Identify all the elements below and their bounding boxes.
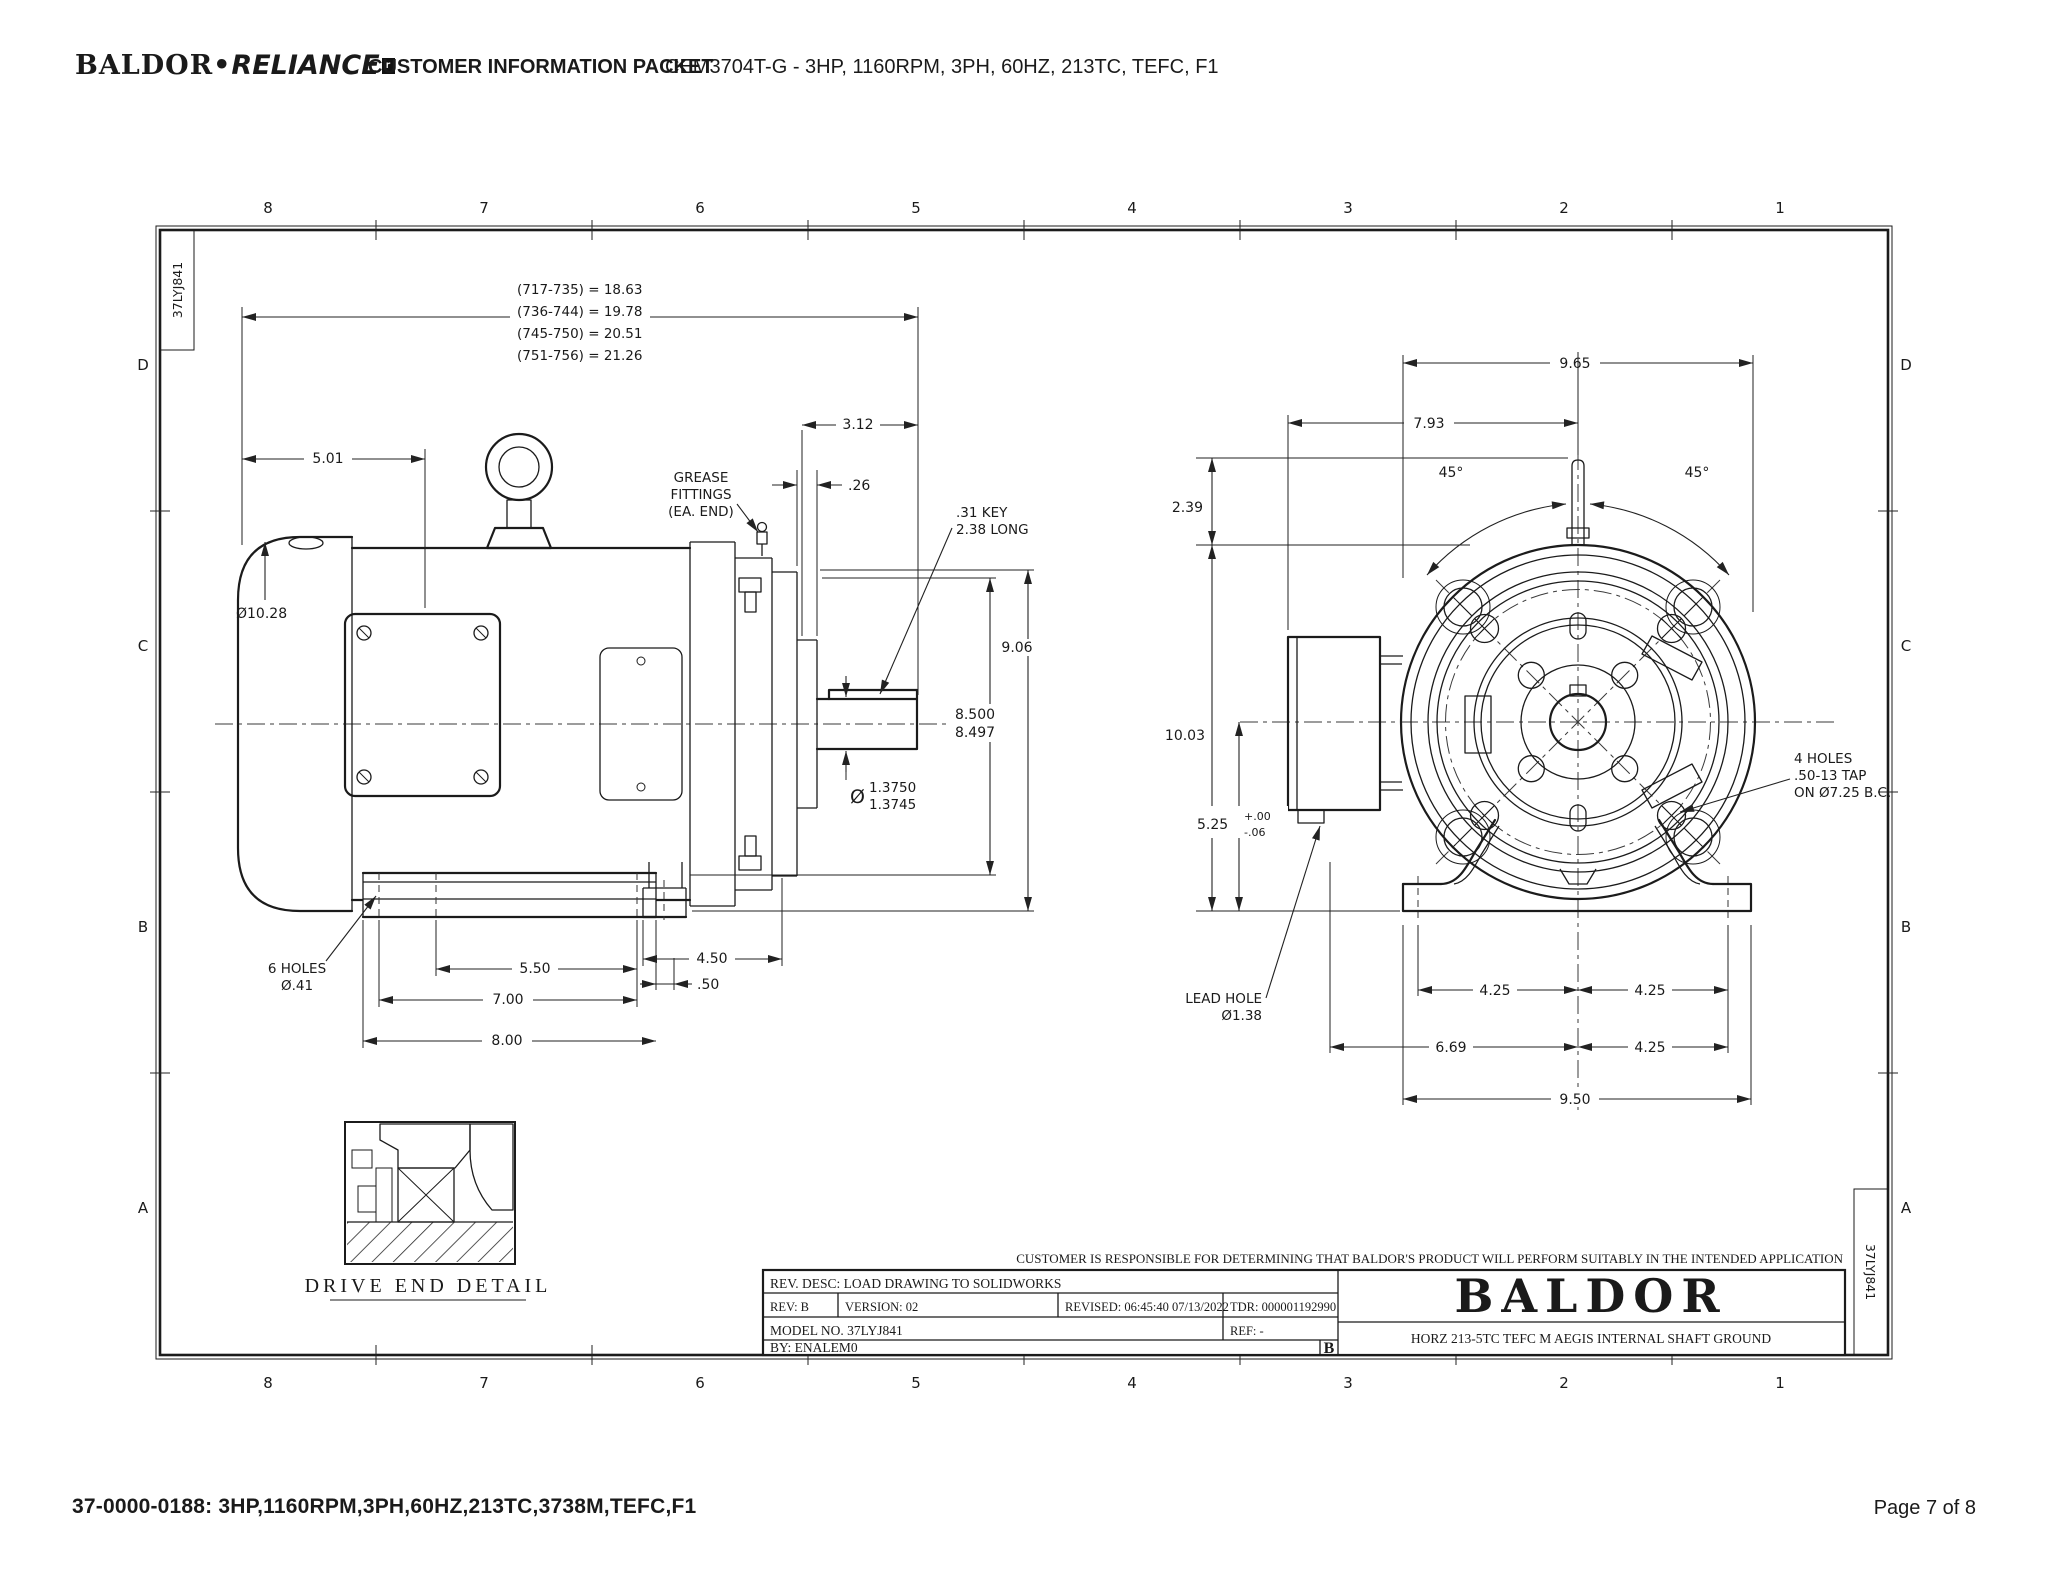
grid-col-bot-1: 1	[1775, 1374, 1785, 1392]
motor-shaft	[817, 690, 917, 749]
dim-3-12: 3.12	[842, 417, 873, 433]
tb-by: BY: ENALEM0	[770, 1340, 858, 1355]
motor-spec-header: CEM3704T-G - 3HP, 1160RPM, 3PH, 60HZ, 21…	[665, 56, 1219, 79]
angle-45-left: 45°	[1439, 465, 1464, 481]
dim-5-25: 5.25	[1197, 817, 1228, 833]
dim-10-03: 10.03	[1165, 728, 1205, 744]
detail-label: DRIVE END DETAIL	[305, 1275, 552, 1297]
tb-version: VERSION: 02	[845, 1300, 918, 1314]
side-dimensions: (717-735) = 18.63 (736-744) = 19.78 (745…	[236, 274, 1040, 1049]
tb-rev-desc: REV. DESC: LOAD DRAWING TO SOLIDWORKS	[770, 1276, 1061, 1291]
stamp-top-left: 37LYJ841	[170, 262, 185, 318]
grid-col-top-7: 7	[479, 199, 489, 217]
title-block: CUSTOMER IS RESPONSIBLE FOR DETERMINING …	[763, 1251, 1845, 1357]
tb-rev: REV: B	[770, 1300, 809, 1314]
length-table-row2: (736-744) = 19.78	[517, 304, 642, 320]
grid-col-bot-7: 7	[479, 1374, 489, 1392]
grid-col-top-3: 3	[1343, 199, 1353, 217]
engineering-drawing: 8 7 6 5 4 3 2 1 8 7 6 5 4 3 2 1 D C B A …	[0, 0, 2048, 1582]
dim-8-00: 8.00	[491, 1033, 522, 1049]
end-outline	[1288, 460, 1755, 918]
dim-0-50: .50	[697, 977, 719, 993]
grease-fitting	[757, 523, 767, 557]
page-number: Page 7 of 8	[1874, 1497, 1976, 1520]
grid-row-right-A: A	[1901, 1199, 1912, 1217]
dim-0-26: .26	[848, 478, 870, 494]
footer-part-number: 37-0000-0188: 3HP,1160RPM,3PH,60HZ,213TC…	[72, 1495, 696, 1519]
dim-4-25-b: 4.25	[1634, 983, 1665, 999]
stamp-bottom-right: 37LYJ841	[1863, 1244, 1878, 1300]
grease-label-1: GREASE	[674, 470, 729, 486]
length-table-row4: (751-756) = 21.26	[517, 348, 642, 364]
grid-col-bot-3: 3	[1343, 1374, 1353, 1392]
brand-logo: BALDOR•RELIANCEr	[75, 50, 395, 81]
end-dimensions: 9.65 7.93 45° 45° 2.39 10.03	[1165, 352, 1891, 1108]
grid-row-left-C: C	[138, 637, 148, 655]
angle-45-right: 45°	[1685, 465, 1710, 481]
side-outline	[238, 434, 917, 920]
grid-row-right-C: C	[1901, 637, 1911, 655]
conduit-box-end	[1288, 637, 1403, 823]
tb-ref: REF: -	[1230, 1324, 1264, 1338]
dim-9-06: 9.06	[1001, 640, 1032, 656]
tap-label-1: 4 HOLES	[1794, 751, 1852, 767]
grid-col-bot-8: 8	[263, 1374, 273, 1392]
grid-col-top-8: 8	[263, 199, 273, 217]
holes-label-1: 6 HOLES	[268, 961, 326, 977]
drive-end-detail: DRIVE END DETAIL	[305, 1122, 552, 1300]
tb-baldor-logo: BALDOR	[1454, 1269, 1727, 1323]
length-table-row3: (745-750) = 20.51	[517, 326, 642, 342]
dim-frame-diameter: Ø10.28	[236, 606, 287, 622]
dim-7-93: 7.93	[1413, 416, 1444, 432]
grid-col-top-2: 2	[1559, 199, 1569, 217]
key-label-2: 2.38 LONG	[956, 522, 1029, 538]
tb-model-no: MODEL NO. 37LYJ841	[770, 1323, 903, 1338]
dim-2-39: 2.39	[1172, 500, 1203, 516]
tap-label-2: .50-13 TAP	[1794, 768, 1866, 784]
zone-ticks	[376, 220, 1672, 1365]
grid-col-top-4: 4	[1127, 199, 1137, 217]
cip-drawing-page: BALDOR•RELIANCEr CUSTOMER INFORMATION PA…	[0, 0, 2048, 1582]
grid-row-right-D: D	[1900, 356, 1912, 374]
grid-row-right-B: B	[1901, 918, 1911, 936]
disclaimer: CUSTOMER IS RESPONSIBLE FOR DETERMINING …	[1016, 1251, 1843, 1266]
dim-9-65: 9.65	[1559, 356, 1590, 372]
conduit-box-side	[345, 614, 500, 796]
brand-dot: •	[213, 50, 231, 81]
grid-col-bot-2: 2	[1559, 1374, 1569, 1392]
holes-label-2: Ø.41	[281, 978, 313, 994]
dim-4-25-c: 4.25	[1634, 1040, 1665, 1056]
shaft-dia-symbol: Ø	[850, 786, 865, 808]
grid-col-bot-4: 4	[1127, 1374, 1137, 1392]
grid-row-left-B: B	[138, 918, 148, 936]
dim-8-500: 8.500	[955, 707, 995, 723]
lead-hole-fitting	[1298, 810, 1324, 823]
dim-4-25-a: 4.25	[1479, 983, 1510, 999]
dim-4-50: 4.50	[696, 951, 727, 967]
lead-hole-label-1: LEAD HOLE	[1185, 991, 1262, 1007]
grid-col-top-1: 1	[1775, 199, 1785, 217]
lifting-eyebolt	[486, 434, 552, 548]
tb-tdr: TDR: 000001192990	[1230, 1300, 1336, 1314]
shaft-dia-upper: 1.3750	[869, 780, 916, 796]
grid-col-bot-6: 6	[695, 1374, 705, 1392]
grid-col-top-6: 6	[695, 199, 705, 217]
grease-label-3: (EA. END)	[668, 504, 734, 520]
dim-5-50: 5.50	[519, 961, 550, 977]
dim-8-497: 8.497	[955, 725, 995, 741]
brand-baldor: BALDOR	[75, 50, 213, 81]
tb-rev-letter: B	[1324, 1340, 1335, 1357]
dim-7-00: 7.00	[492, 992, 523, 1008]
dim-5-25-tol-plus: +.00	[1244, 810, 1271, 823]
grid-col-bot-5: 5	[911, 1374, 921, 1392]
document-title: CUSTOMER INFORMATION PACKET	[368, 56, 714, 79]
tb-description: HORZ 213-5TC TEFC M AEGIS INTERNAL SHAFT…	[1411, 1331, 1771, 1346]
grid-row-left-D: D	[137, 356, 149, 374]
dim-5-01: 5.01	[312, 451, 343, 467]
dim-9-50: 9.50	[1559, 1092, 1590, 1108]
dim-6-69: 6.69	[1435, 1040, 1466, 1056]
grid-col-top-5: 5	[911, 199, 921, 217]
motor-side-view: (717-735) = 18.63 (736-744) = 19.78 (745…	[215, 274, 1040, 1049]
grease-label-2: FITTINGS	[670, 487, 731, 503]
mounting-base	[363, 873, 656, 917]
key-label-1: .31 KEY	[956, 505, 1008, 521]
tap-label-3: ON Ø7.25 B.C.	[1794, 785, 1891, 801]
shaft-dia-lower: 1.3745	[869, 797, 916, 813]
motor-end-view: 9.65 7.93 45° 45° 2.39 10.03	[1165, 352, 1891, 1115]
length-table-row1: (717-735) = 18.63	[517, 282, 642, 298]
grid-row-left-A: A	[138, 1199, 149, 1217]
face-pocket	[1465, 696, 1491, 753]
brand-reliance: RELIANCE	[231, 50, 379, 81]
lead-hole-label-2: Ø1.38	[1221, 1008, 1262, 1024]
dim-5-25-tol-minus: -.06	[1244, 826, 1265, 839]
tb-revised: REVISED: 06:45:40 07/13/2022	[1065, 1300, 1229, 1314]
